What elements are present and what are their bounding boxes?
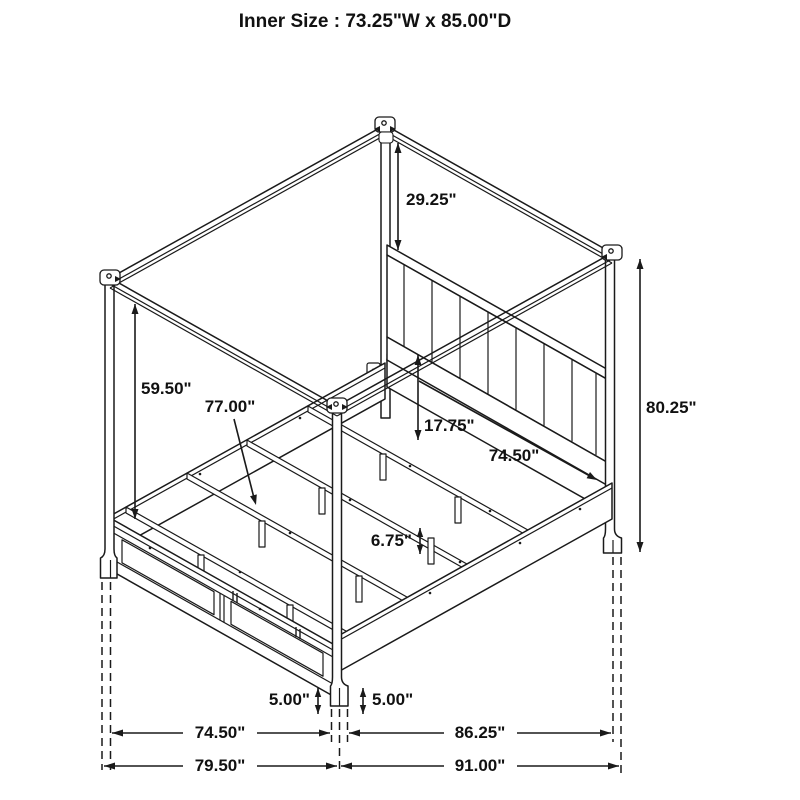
label-foot-height-left: 5.00" xyxy=(269,690,310,710)
label-side-depth-inner: 86.25" xyxy=(455,723,506,743)
label-leg-height: 6.75" xyxy=(371,531,412,551)
inner-size-title: Inner Size : 73.25"W x 85.00"D xyxy=(239,11,512,33)
label-front-width-inner: 74.50" xyxy=(195,723,246,743)
dim-59-50 xyxy=(132,304,139,519)
dim-5-00-right xyxy=(360,688,366,714)
label-under-canopy-clearance: 59.50" xyxy=(141,379,192,399)
dim-29-25 xyxy=(395,143,402,250)
label-foot-height-right: 5.00" xyxy=(372,690,413,710)
label-deck-to-headboard: 17.75" xyxy=(424,416,475,436)
label-front-width-overall: 79.50" xyxy=(195,756,246,776)
label-side-rail-inner: 74.50" xyxy=(489,446,540,466)
bed-dimension-diagram: Inner Size : 73.25"W x 85.00"D 29.25" 59… xyxy=(0,0,800,800)
label-overall-height: 80.25" xyxy=(646,398,697,418)
left-post xyxy=(101,283,118,578)
dim-80-25 xyxy=(637,259,644,552)
dim-5-00-left xyxy=(315,688,321,714)
right-side-rail xyxy=(338,483,612,672)
label-canopy-to-headboard: 29.25" xyxy=(406,190,457,210)
label-side-depth-overall: 91.00" xyxy=(455,756,506,776)
label-slat-length: 77.00" xyxy=(205,397,256,417)
